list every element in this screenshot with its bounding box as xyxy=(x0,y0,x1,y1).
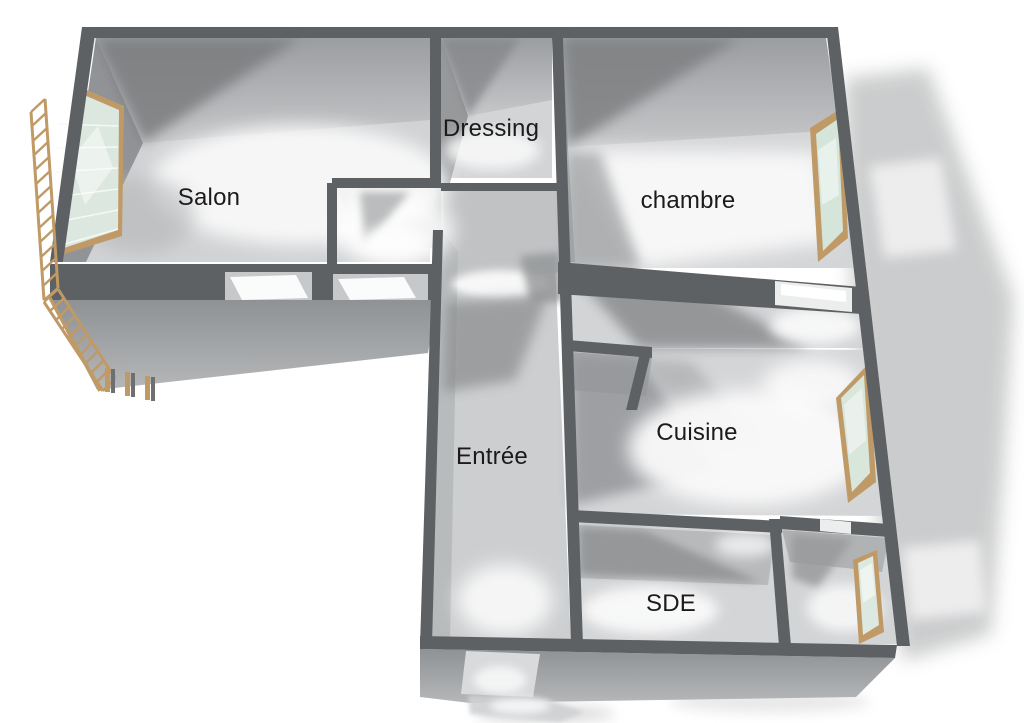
floor-plan-page: Salon Dressing chambre Entrée Cuisine SD… xyxy=(0,0,1024,723)
sde-highlight-2 xyxy=(715,533,775,557)
entry-door-light xyxy=(474,666,526,694)
cuisine-label: Cuisine xyxy=(656,419,737,446)
dressing-west-wall xyxy=(430,38,441,183)
entree-floor-highlight xyxy=(457,564,553,636)
hallway-floor-highlight xyxy=(770,308,860,344)
sde-label: SDE xyxy=(646,590,696,617)
north-wall xyxy=(82,27,836,38)
entry-landing-highlight xyxy=(490,698,550,714)
hall-north-wall xyxy=(332,178,441,188)
shadow-light-patch-bottom xyxy=(902,540,987,620)
balcony-door-leaf-1 xyxy=(230,275,308,300)
salon-label: Salon xyxy=(178,184,240,211)
shadow-light-patch-top xyxy=(869,158,956,258)
entree-label: Entrée xyxy=(456,443,528,470)
hall-floor-highlight xyxy=(357,227,427,257)
entree-north-wall xyxy=(441,183,560,191)
chambre-label: chambre xyxy=(641,187,736,214)
dressing-label: Dressing xyxy=(443,115,539,142)
floor-plan-3d: Salon Dressing chambre Entrée Cuisine SD… xyxy=(0,0,1024,723)
balcony-door-leaf-2 xyxy=(338,277,416,300)
hall-west-wall xyxy=(327,183,337,267)
